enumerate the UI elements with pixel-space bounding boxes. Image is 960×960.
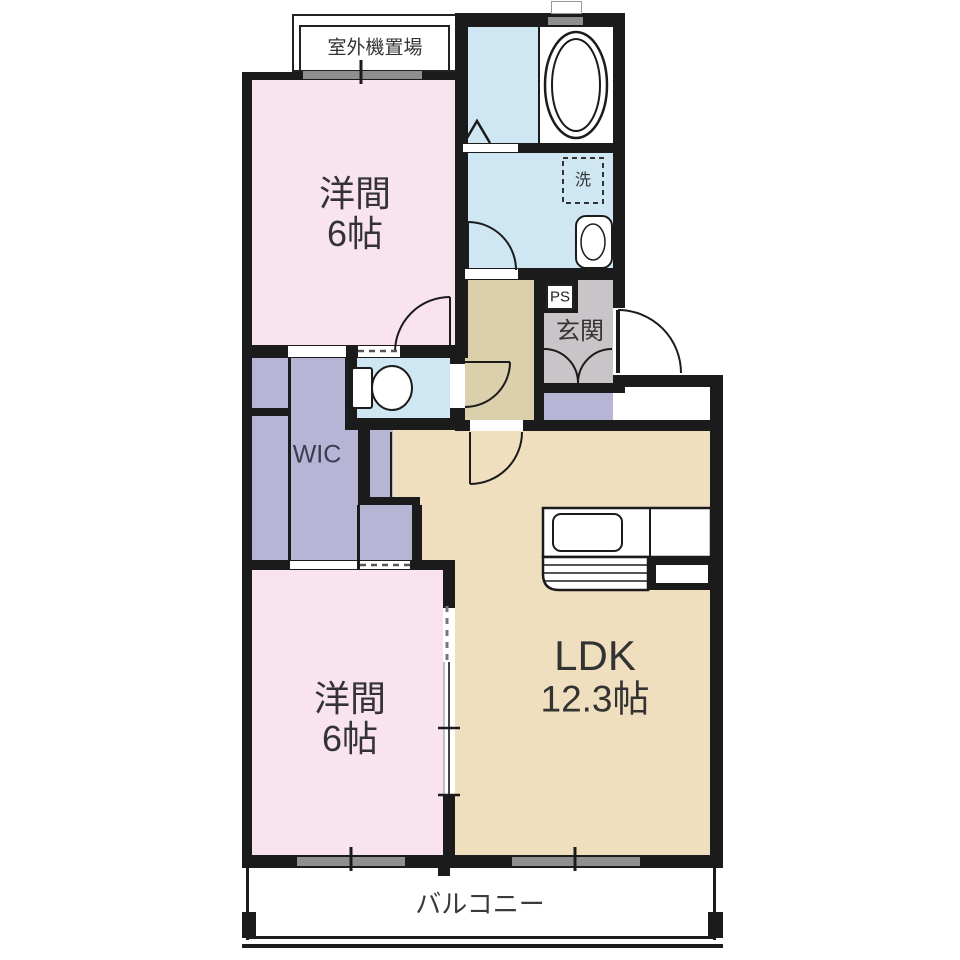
bedroom2-sliding-door-icon bbox=[438, 662, 460, 795]
floor-plan: 洋間 6帖 洋間 6帖 LDK 12.3帖 WIC 玄関 バルコニー 室外機置場… bbox=[0, 0, 960, 960]
toilet-door-icon bbox=[465, 362, 510, 407]
wic-label: WIC bbox=[293, 443, 342, 468]
ldk-size-label: 12.3帖 bbox=[540, 681, 649, 718]
outdoor-unit-label: 室外機置場 bbox=[327, 39, 422, 58]
bedroom1-label: 洋間 bbox=[319, 176, 391, 212]
bedroom2-label: 洋間 bbox=[314, 681, 386, 717]
ldk-label: LDK bbox=[554, 635, 636, 677]
entrance-closet-doors-icon bbox=[544, 349, 612, 383]
bath-folding-door-icon bbox=[464, 121, 490, 143]
toilet-icon bbox=[352, 366, 412, 410]
fixtures-overlay bbox=[0, 0, 960, 960]
washroom-door-icon bbox=[468, 222, 516, 270]
entrance-door-icon bbox=[618, 310, 681, 373]
washbasin-icon bbox=[576, 216, 612, 268]
entrance-label: 玄関 bbox=[556, 320, 604, 344]
ldk-door-icon bbox=[470, 432, 522, 484]
bathtub-icon bbox=[545, 32, 607, 138]
bedroom1-door-icon bbox=[395, 297, 450, 352]
washer-label: 洗 bbox=[575, 173, 591, 189]
bedroom1-size-label: 6帖 bbox=[327, 216, 383, 252]
balcony-label: バルコニー bbox=[415, 891, 544, 917]
kitchen-counter-icon bbox=[543, 508, 712, 590]
pipe-space-label: PS bbox=[550, 290, 570, 305]
bedroom2-size-label: 6帖 bbox=[322, 721, 378, 757]
